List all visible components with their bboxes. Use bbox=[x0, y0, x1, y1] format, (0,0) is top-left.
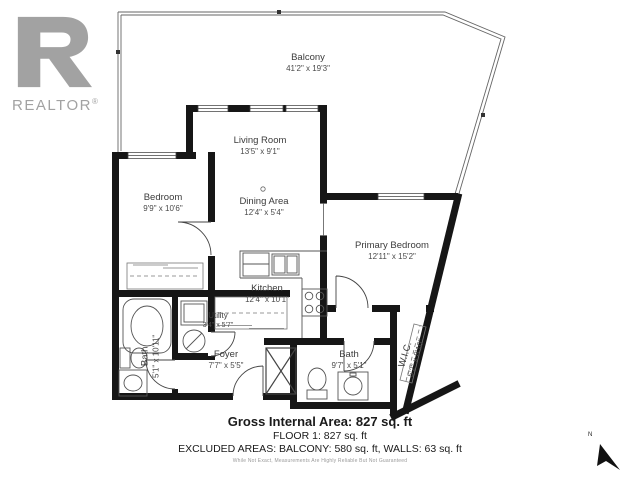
toilet-bowl bbox=[131, 348, 147, 368]
sink-basin bbox=[124, 375, 142, 391]
floor-plan-page: REALTOR® Balcony41'2" x 19'3" Living Roo… bbox=[0, 0, 640, 480]
realtor-logo-text: REALTOR® bbox=[12, 97, 122, 114]
area-summary: Gross Internal Area: 827 sq. ft FLOOR 1:… bbox=[0, 414, 640, 464]
toilet-bowl bbox=[308, 368, 326, 390]
fridge bbox=[243, 253, 269, 276]
bedroom-door bbox=[178, 222, 211, 255]
bath1-door bbox=[146, 360, 175, 389]
kitchen-sink bbox=[272, 254, 299, 275]
toilet-tank bbox=[307, 390, 327, 399]
vanity bbox=[119, 370, 147, 396]
floor-area-text: FLOOR 1: 827 sq. ft bbox=[273, 430, 367, 442]
hall-closet bbox=[215, 297, 287, 329]
bedroom-closet bbox=[127, 263, 203, 289]
realtor-r-icon bbox=[12, 12, 92, 90]
excluded-area-text: EXCLUDED AREAS: BALCONY: 580 sq. ft, WAL… bbox=[178, 443, 462, 455]
washer bbox=[181, 301, 207, 325]
sink-basin bbox=[344, 377, 362, 395]
bath1-fixtures bbox=[119, 299, 171, 396]
windows bbox=[128, 105, 424, 200]
balcony-ticks bbox=[116, 10, 485, 117]
bathtub bbox=[123, 299, 171, 353]
realtor-logo: REALTOR® bbox=[12, 12, 122, 114]
entry-door bbox=[233, 366, 263, 396]
primary-door bbox=[336, 276, 368, 308]
bath2-fixtures bbox=[307, 368, 368, 400]
toilet-tank bbox=[120, 348, 130, 368]
utility-fixtures bbox=[181, 301, 207, 352]
ceiling-light-icon bbox=[261, 187, 265, 191]
disclaimer-text: While Not Exact, Measurements Are Highly… bbox=[233, 458, 408, 464]
balcony-outline bbox=[118, 12, 505, 197]
bath2-door bbox=[344, 341, 374, 371]
gross-area-text: Gross Internal Area: 827 sq. ft bbox=[228, 414, 412, 429]
